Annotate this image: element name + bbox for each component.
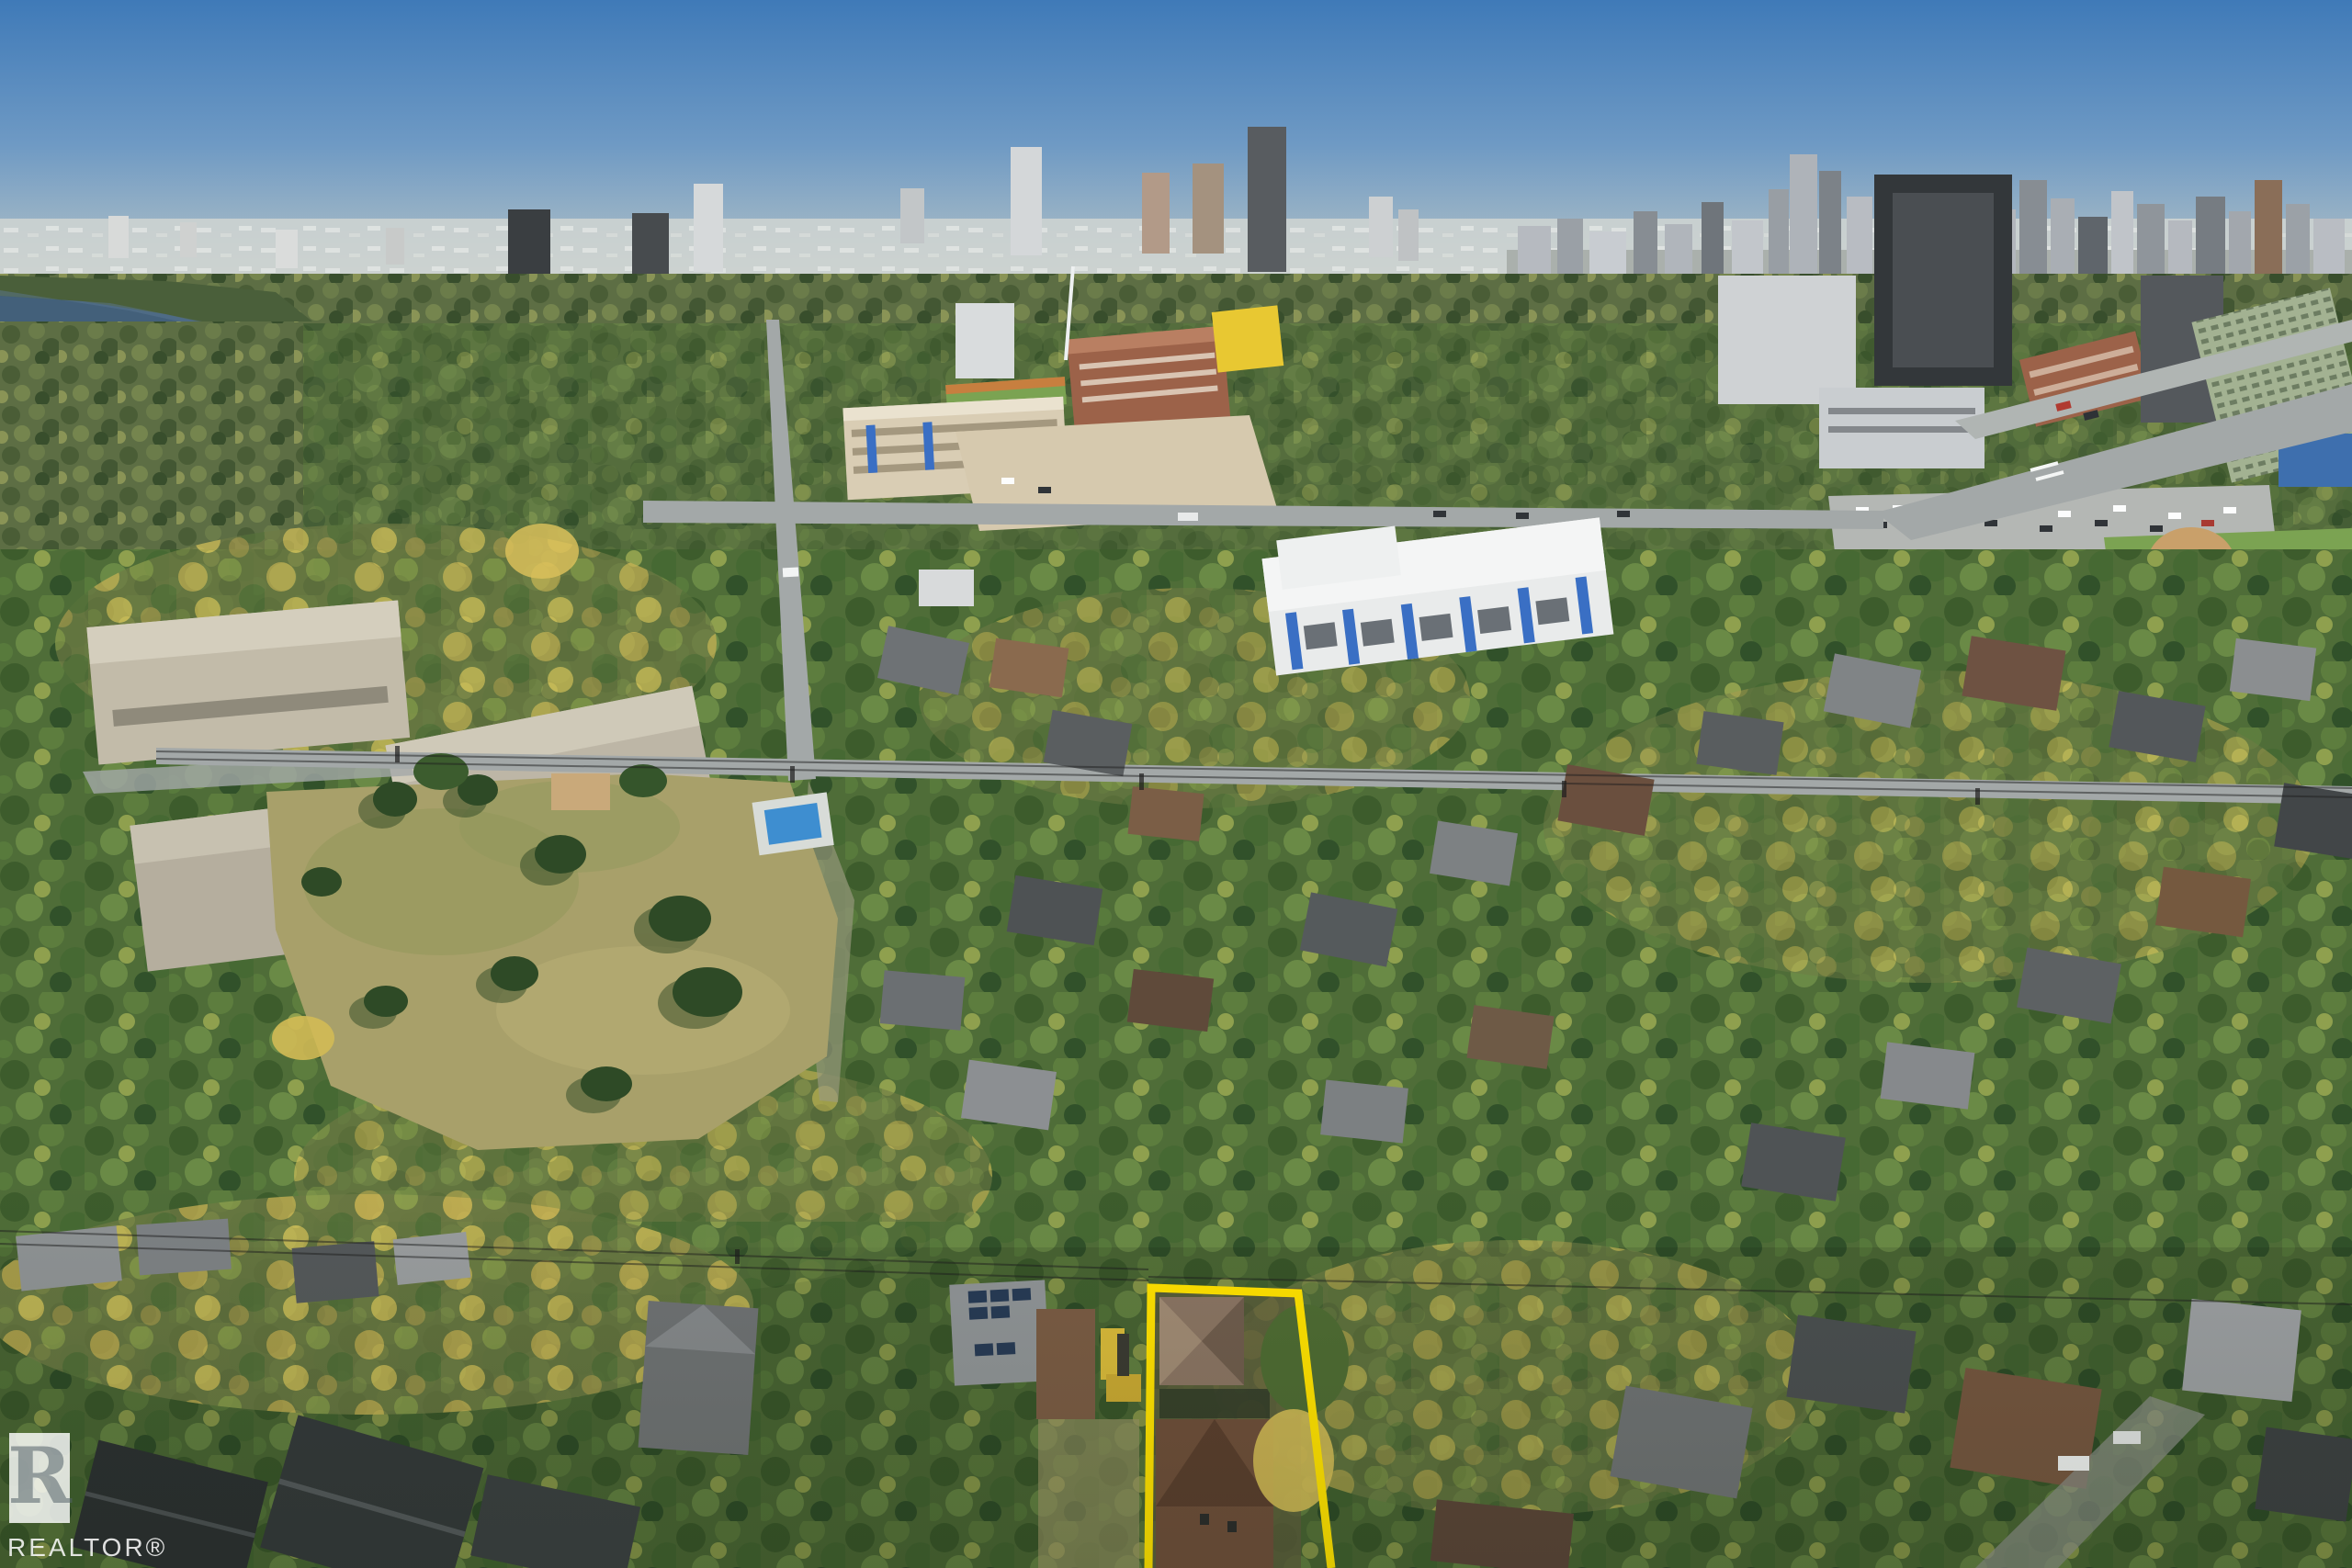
aerial-photo-canvas: R REALTOR®	[0, 0, 2352, 1568]
realtor-logo-r-icon: R	[7, 1430, 73, 1521]
vignette	[0, 0, 2352, 1568]
aerial-photo: R REALTOR®	[0, 0, 2352, 1568]
realtor-watermark-label: REALTOR®	[7, 1533, 167, 1562]
